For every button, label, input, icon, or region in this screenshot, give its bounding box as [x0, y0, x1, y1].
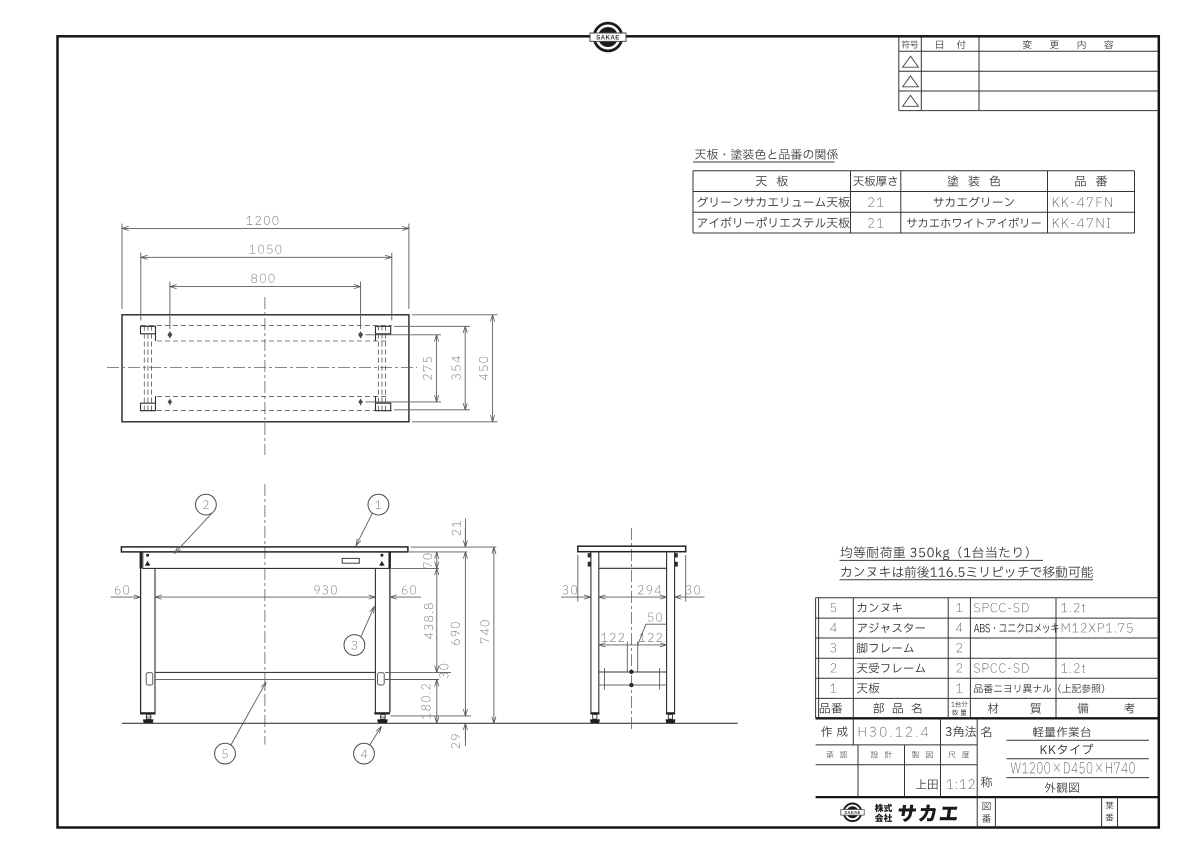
svg-text:SAKAE: SAKAE	[844, 810, 860, 815]
svg-text:SAKAE: SAKAE	[596, 35, 620, 42]
